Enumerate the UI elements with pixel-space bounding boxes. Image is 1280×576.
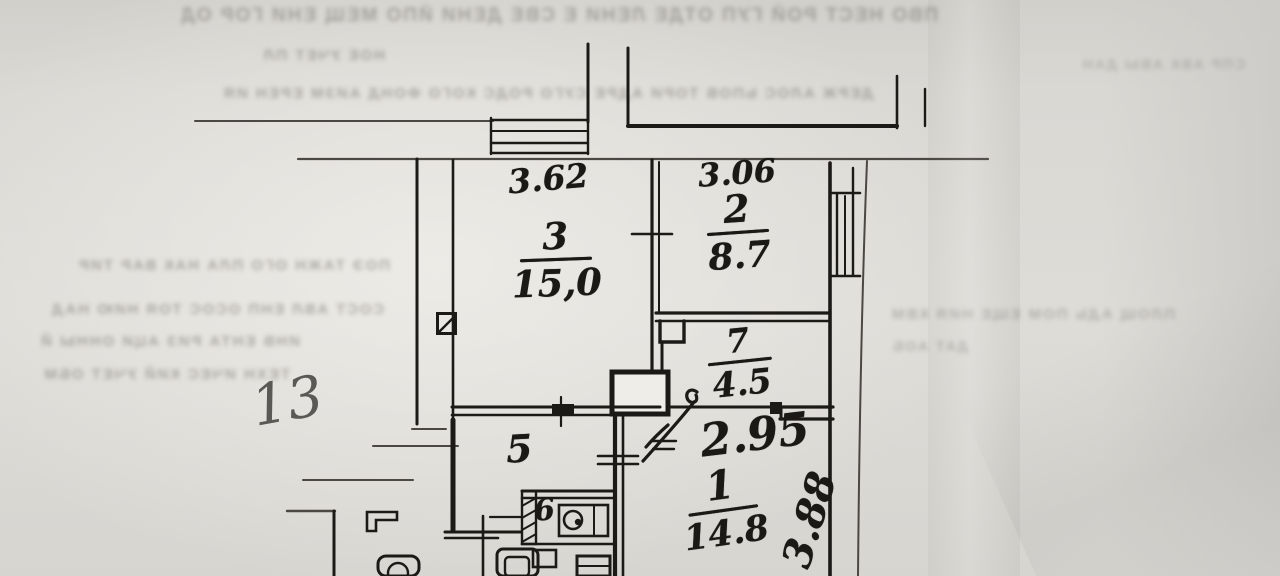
stove-fixture-icon: [577, 556, 610, 576]
room3-area: 15,0: [506, 263, 607, 303]
room3-number: 3: [505, 216, 606, 256]
scanned-floor-plan-page: ПВО НЕСТ РОЙ ГУП ОТДЕ ЛЕНИ Е СВЕ ДЕНИ ЙП…: [0, 0, 1280, 576]
room7-area: 4.5: [701, 363, 784, 405]
window-top: [491, 118, 588, 154]
room3-label: 3 15,0: [505, 216, 608, 303]
thin-scan-lines: [195, 121, 988, 576]
room1-label: 1 14.8: [673, 460, 774, 557]
room2-number: 2: [689, 187, 783, 231]
room6-number: 6: [533, 495, 556, 527]
room2-area: 8.7: [693, 235, 787, 277]
window-right: [831, 168, 860, 276]
bath-fixture-icon: [378, 556, 419, 576]
dimension-doorway-width: 2.95: [698, 405, 812, 463]
dimension-room3-width: 3.62: [507, 159, 590, 199]
door-jamb: [367, 512, 397, 531]
room5-number: 5: [505, 429, 533, 468]
floorplan-drawing: [0, 0, 1280, 576]
sink-fixture-icon: [559, 505, 608, 536]
room7-label: 7 4.5: [696, 320, 784, 405]
room7-number: 7: [696, 320, 779, 361]
wall-fill-segment: [552, 404, 574, 416]
room2-label: 2 8.7: [689, 187, 787, 277]
handwritten-note-13: 13: [248, 368, 328, 436]
